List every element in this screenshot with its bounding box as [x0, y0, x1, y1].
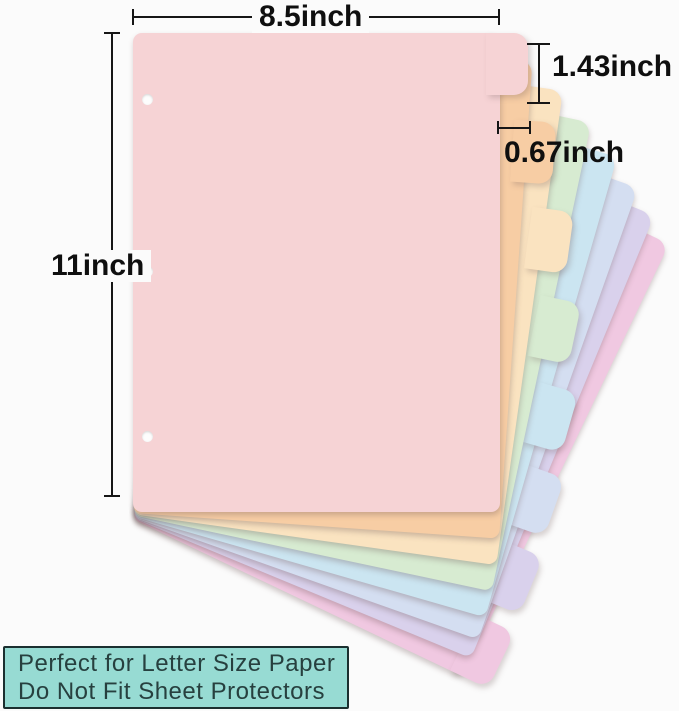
punch-hole [142, 94, 153, 105]
punch-hole [142, 431, 153, 442]
tab-height-dimension-tick-top [527, 43, 550, 45]
height-dimension-tick-bottom [104, 495, 120, 497]
width-dimension-tick-right [498, 9, 500, 25]
width-dimension-label: 8.5inch [252, 1, 369, 33]
tab-width-dimension-line [498, 127, 530, 129]
width-dimension-tick-left [132, 9, 134, 25]
tab-height-dimension-line [538, 45, 540, 103]
divider-sheet-pink [133, 33, 500, 512]
tab-width-dimension-tick-left [497, 121, 499, 134]
info-box-line2: Do Not Fit Sheet Protectors [18, 678, 347, 706]
info-box-line1: Perfect for Letter Size Paper [18, 650, 347, 678]
tab-width-dimension-tick-right [529, 121, 531, 134]
height-dimension-tick-top [104, 32, 120, 34]
divider-tab-1 [486, 33, 528, 95]
tab-height-dimension-label: 1.43inch [552, 51, 672, 83]
height-dimension-label: 11inch [44, 250, 151, 282]
tab-width-dimension-label: 0.67inch [504, 137, 624, 169]
info-box: Perfect for Letter Size Paper Do Not Fit… [3, 646, 349, 709]
tab-height-dimension-tick-bottom [527, 102, 550, 104]
divider-product-diagram: 8.5inch 11inch 1.43inch 0.67inch Perfect… [0, 0, 679, 711]
